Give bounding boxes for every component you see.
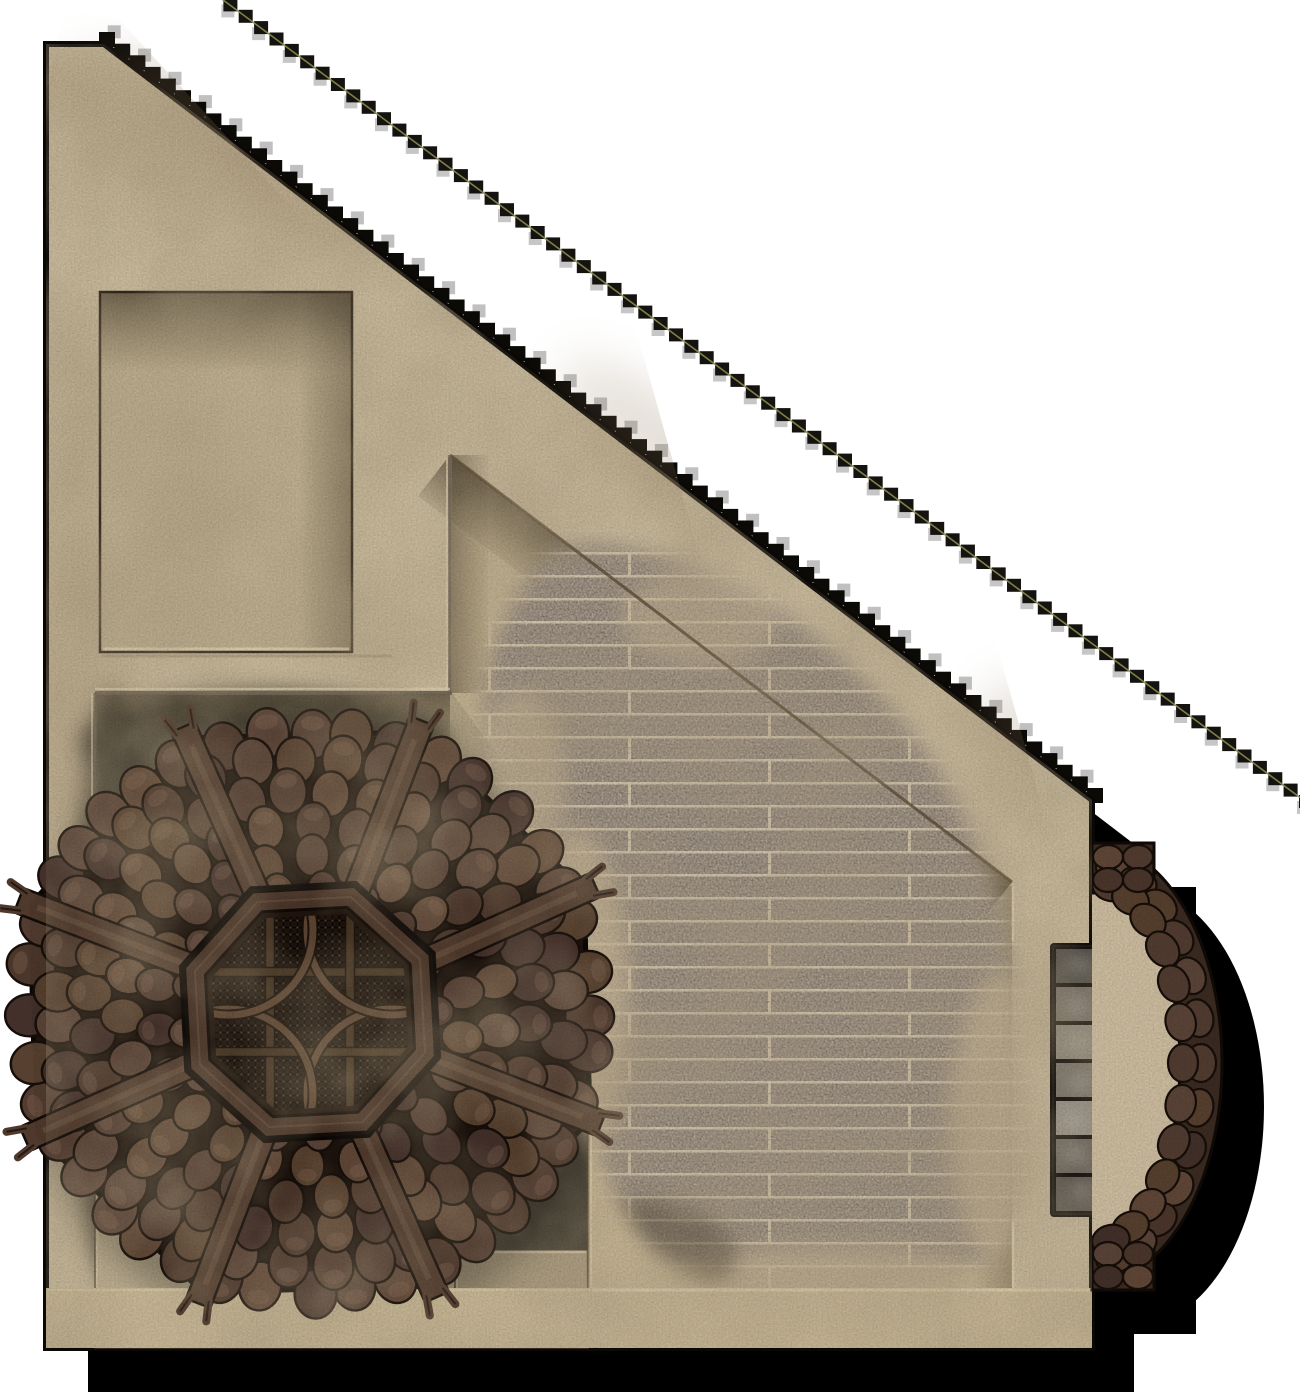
battle-map <box>0 0 1300 1400</box>
battle-map-page <box>0 0 1300 1400</box>
stucco-texture-overlay <box>0 0 1300 1400</box>
